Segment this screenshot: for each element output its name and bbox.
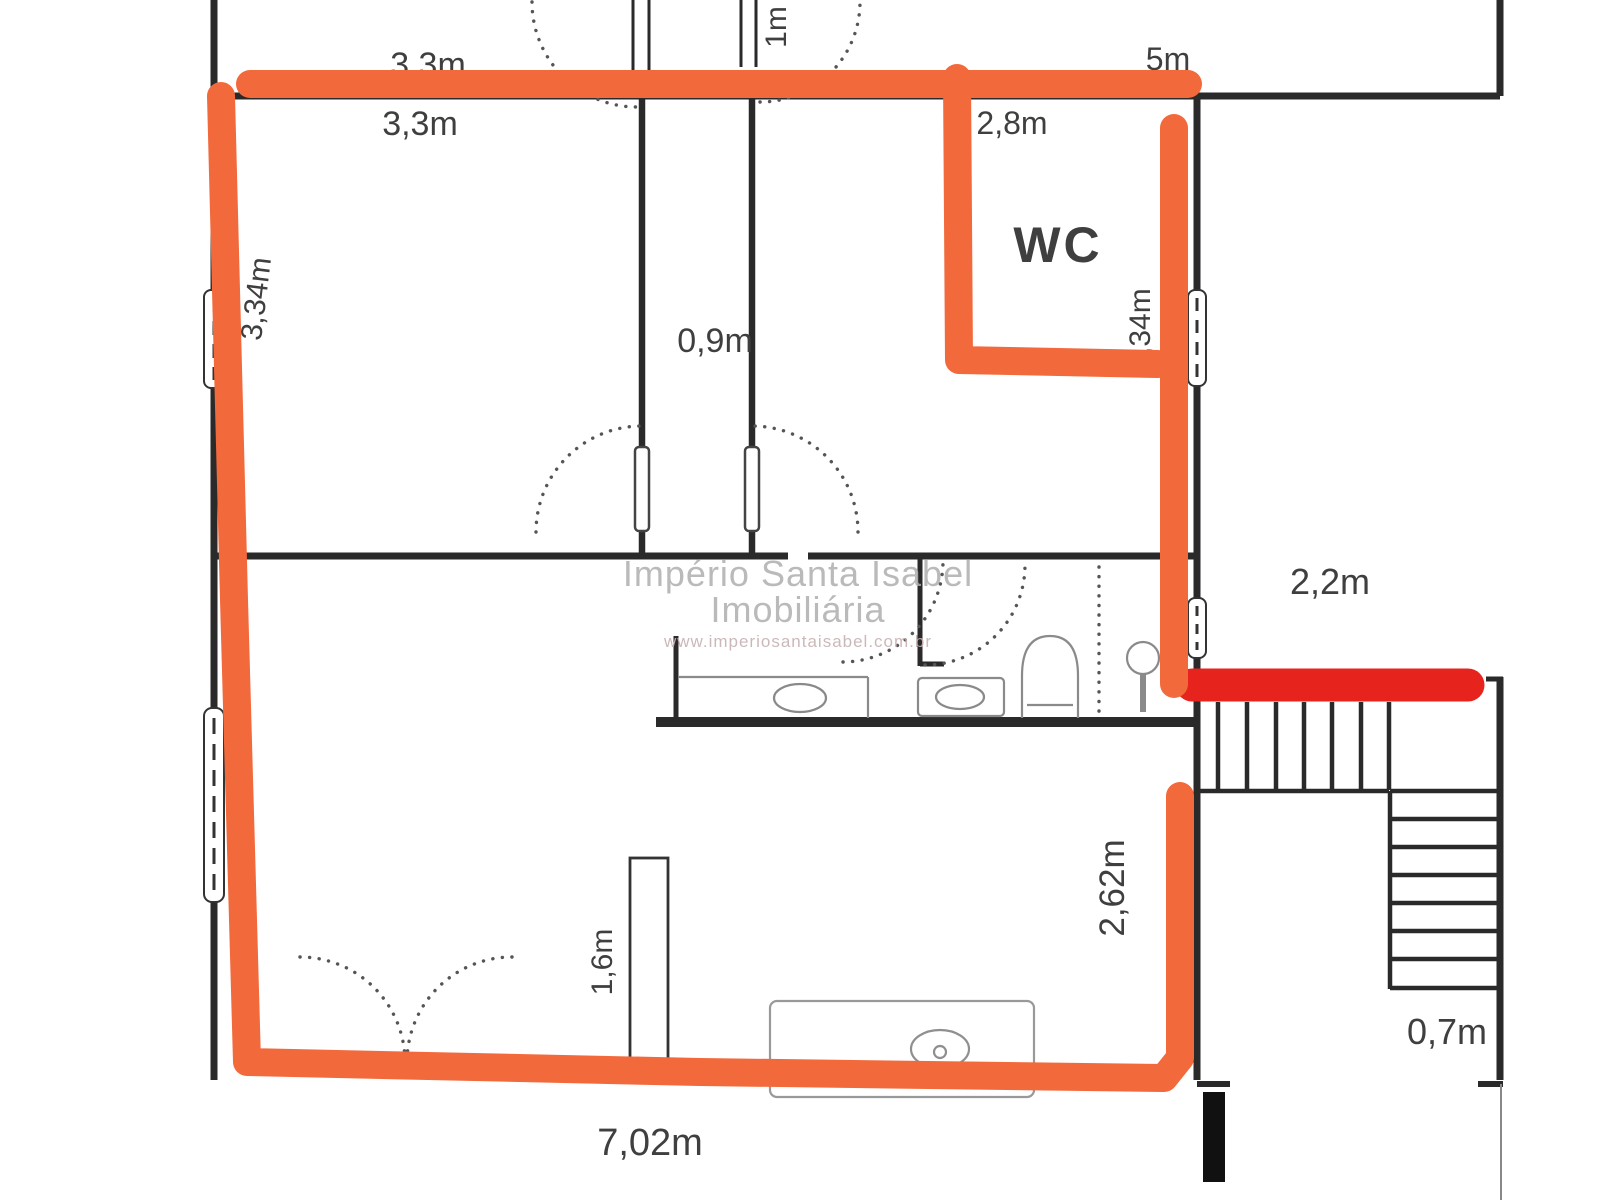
stairs-upper-run (1199, 702, 1389, 791)
vestibule-stub-walls (633, 0, 756, 70)
doors (300, 2, 1099, 1062)
bath-sink-icon (936, 685, 984, 709)
dim-bottom-width: 7,02m (597, 1122, 703, 1164)
window-icon (1188, 290, 1206, 386)
pedestal-sink-icon (1127, 642, 1159, 674)
door-leaves (635, 447, 759, 531)
door-arcs (300, 2, 1099, 1062)
stairs-lower-run (1390, 791, 1500, 989)
bath-sink-cabinet (918, 678, 1004, 716)
door-arc-icon (536, 426, 642, 532)
window-icon (204, 708, 224, 902)
dim-counter-length: 1,6m (586, 929, 619, 996)
cooktop-knob-icon (934, 1046, 946, 1058)
windows (204, 290, 1206, 902)
exterior-walls (214, 0, 1500, 1080)
dim-hall-width: 2,2m (1290, 561, 1370, 602)
door-leaf (745, 447, 759, 531)
door-leaf (635, 447, 649, 531)
laundry-sink-icon (774, 684, 826, 712)
counter-column (630, 858, 668, 1068)
dim-bedroom1-width: 3,3m (382, 105, 458, 143)
wall-pillar (1203, 1092, 1225, 1182)
stairs (1199, 702, 1500, 989)
dim-entry-door: 1m (760, 6, 793, 48)
door-arc-icon (407, 957, 512, 1062)
dim-kitchen-height: 2,62m (1093, 839, 1132, 936)
watermark-line2: Imobiliária (710, 589, 885, 630)
dim-corridor-width: 0,9m (677, 322, 753, 360)
door-arc-icon (300, 957, 405, 1062)
interior-walls (216, 0, 1503, 1084)
dim-stair-width: 0,7m (1407, 1011, 1487, 1052)
door-arc-icon (752, 426, 858, 532)
room-label-wc: WC (1013, 217, 1102, 273)
watermark-line1: Império Santa Isabel (623, 553, 973, 594)
dim-wc-width: 2,8m (976, 105, 1047, 141)
window-icon (1188, 598, 1206, 658)
toilet-icon (1022, 636, 1078, 718)
dim-bedroom1-height: 3,34m (235, 255, 278, 342)
watermark-url: www.imperiosantaisabel.com.br (663, 632, 932, 651)
fixtures (678, 636, 1159, 1097)
floor-plan-canvas: 3,3m 3,3m 1m 5m 2,8m WC 2,34m 3,34m 0,9m… (0, 0, 1600, 1200)
